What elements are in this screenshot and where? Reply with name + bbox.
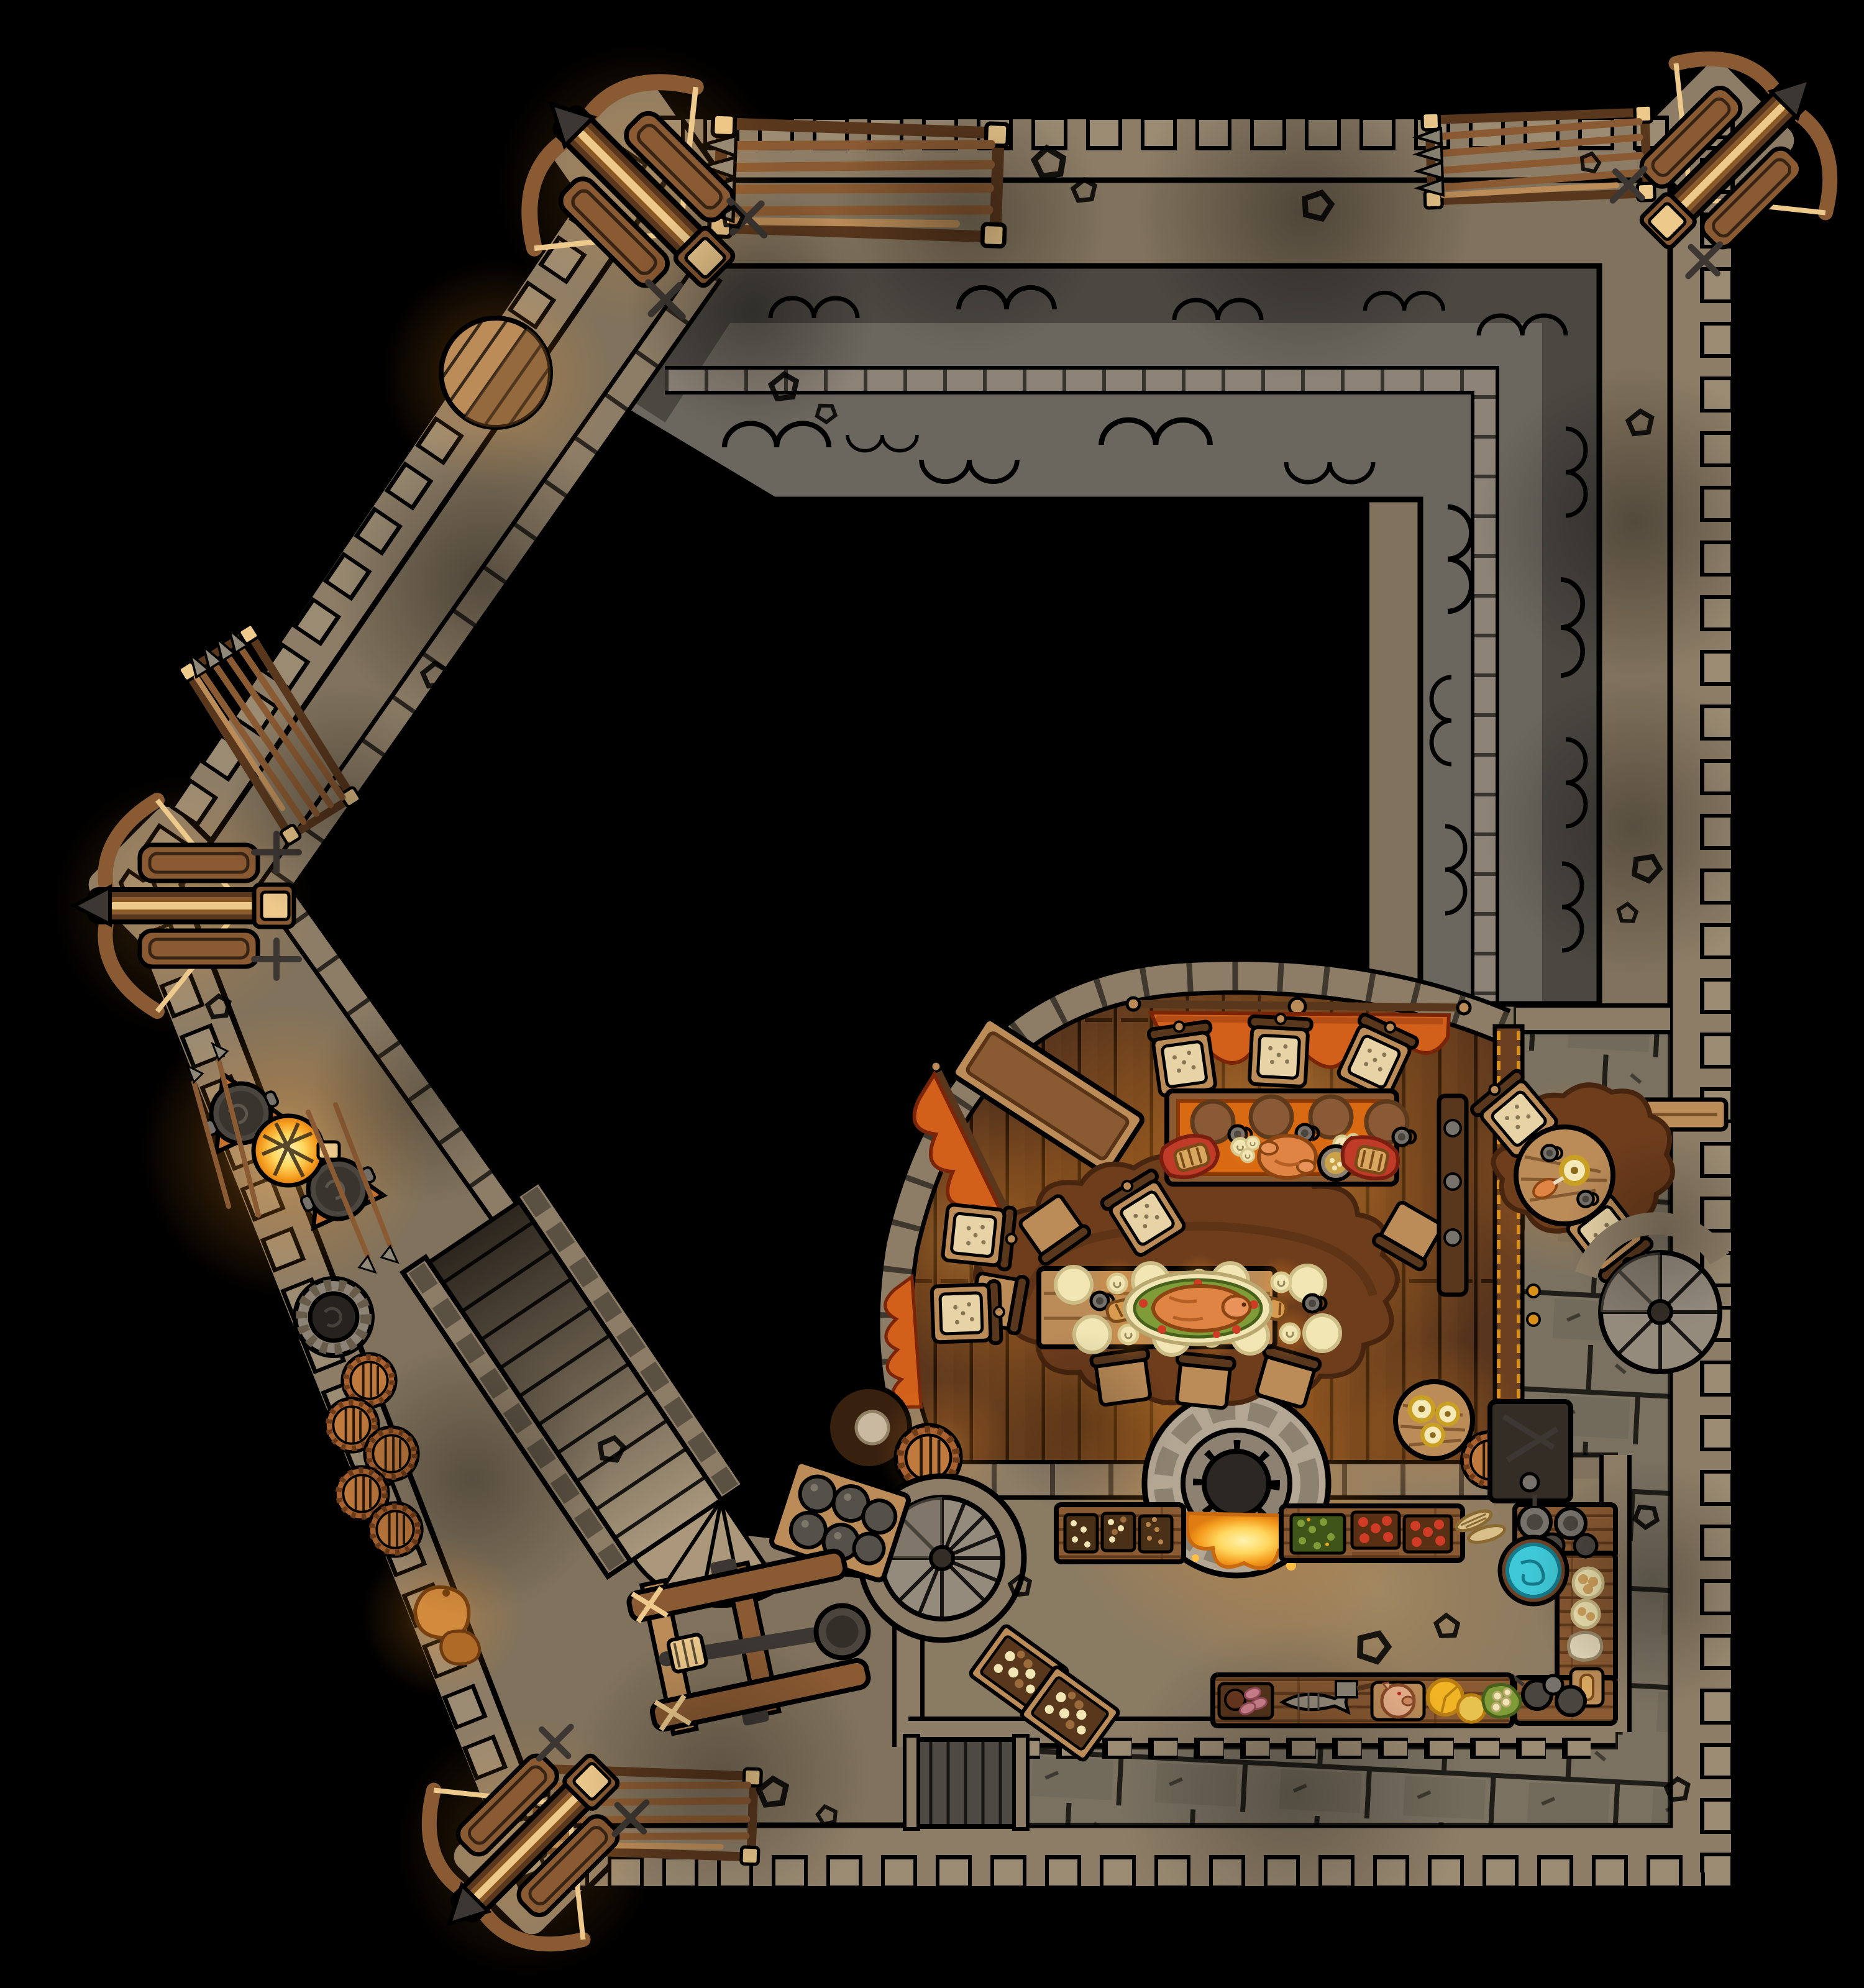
cushioned-chair [942, 1201, 1020, 1270]
battle-map-stage [0, 0, 1864, 1988]
cushioned-chair [1246, 1012, 1312, 1087]
tool-rack [1490, 1402, 1571, 1501]
chimney-hole [1204, 1451, 1269, 1516]
stone-well [295, 1279, 372, 1356]
serving-board [1439, 1096, 1466, 1295]
roast-pig-platter [1125, 1272, 1271, 1344]
south-gate [905, 1736, 1028, 1829]
cushioned-chair [931, 1281, 1005, 1346]
cushioned-chair [1148, 1018, 1219, 1097]
candle-table [1396, 1382, 1473, 1459]
candle-sconce [1527, 1285, 1540, 1297]
roast-fowl [1259, 1136, 1316, 1178]
candle-sconce [1527, 1313, 1540, 1326]
battle-map [0, 0, 1864, 1988]
lettuce-and-eggs [1483, 1685, 1520, 1718]
